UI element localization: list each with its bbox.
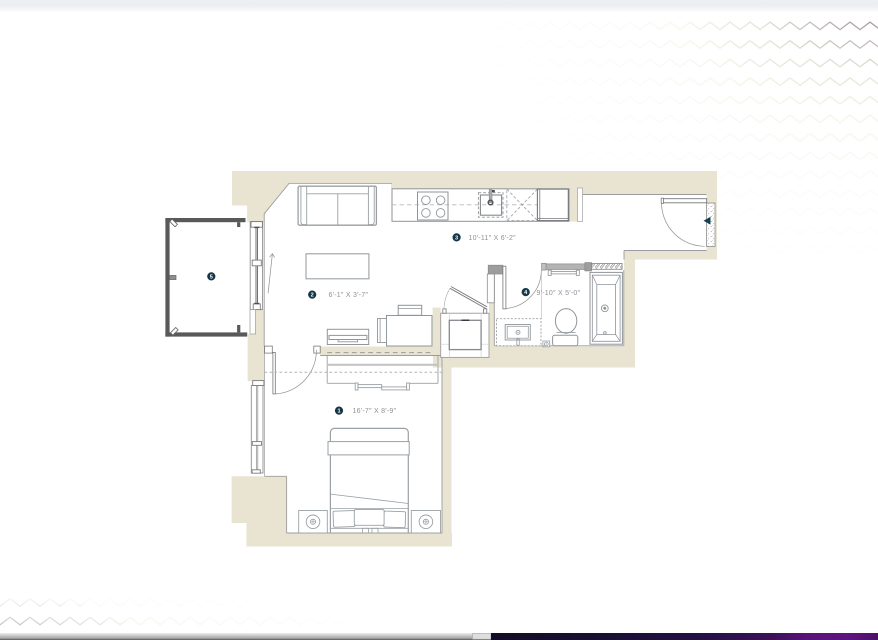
svg-text:6′-1″ X 3′-7″: 6′-1″ X 3′-7″	[329, 292, 369, 299]
svg-text:16′-7″ X 8′-9″: 16′-7″ X 8′-9″	[353, 408, 397, 415]
svg-text:5: 5	[210, 275, 213, 281]
svg-text:10′-11″ X 6′-2″: 10′-11″ X 6′-2″	[469, 235, 517, 242]
svg-text:9′-10″ X 5′-0″: 9′-10″ X 5′-0″	[537, 290, 581, 297]
svg-text:2: 2	[311, 293, 314, 299]
svg-text:1: 1	[337, 409, 340, 415]
svg-text:3: 3	[455, 236, 458, 242]
